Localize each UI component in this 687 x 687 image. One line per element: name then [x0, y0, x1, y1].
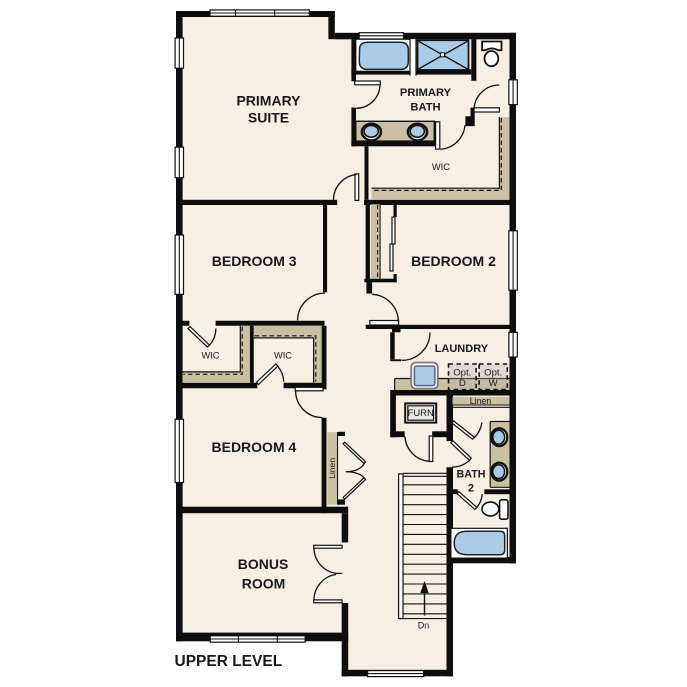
svg-text:Linen: Linen	[327, 458, 337, 479]
svg-text:Opt.: Opt.	[453, 367, 471, 378]
svg-text:SUITE: SUITE	[248, 109, 289, 125]
svg-text:ROOM: ROOM	[242, 576, 286, 592]
svg-text:BEDROOM 2: BEDROOM 2	[411, 253, 496, 269]
svg-text:LAUNDRY: LAUNDRY	[435, 343, 489, 355]
svg-text:WIC: WIC	[201, 351, 219, 361]
svg-text:FURN: FURN	[408, 407, 434, 418]
svg-text:WIC: WIC	[432, 162, 450, 172]
svg-text:UPPER LEVEL: UPPER LEVEL	[175, 653, 283, 670]
svg-text:PRIMARY: PRIMARY	[400, 87, 452, 99]
svg-text:BATH: BATH	[457, 469, 486, 481]
svg-text:PRIMARY: PRIMARY	[236, 92, 301, 108]
svg-text:Opt.: Opt.	[484, 367, 502, 378]
svg-text:BONUS: BONUS	[238, 556, 289, 572]
svg-text:BATH: BATH	[410, 102, 440, 114]
svg-text:BEDROOM 4: BEDROOM 4	[212, 439, 297, 455]
svg-text:Dn: Dn	[418, 621, 430, 631]
svg-text:WIC: WIC	[274, 351, 292, 361]
svg-text:BEDROOM 3: BEDROOM 3	[212, 253, 297, 269]
svg-text:Linen: Linen	[470, 396, 492, 406]
svg-text:W: W	[489, 378, 499, 389]
svg-text:2: 2	[468, 483, 474, 495]
svg-text:D: D	[459, 378, 466, 389]
